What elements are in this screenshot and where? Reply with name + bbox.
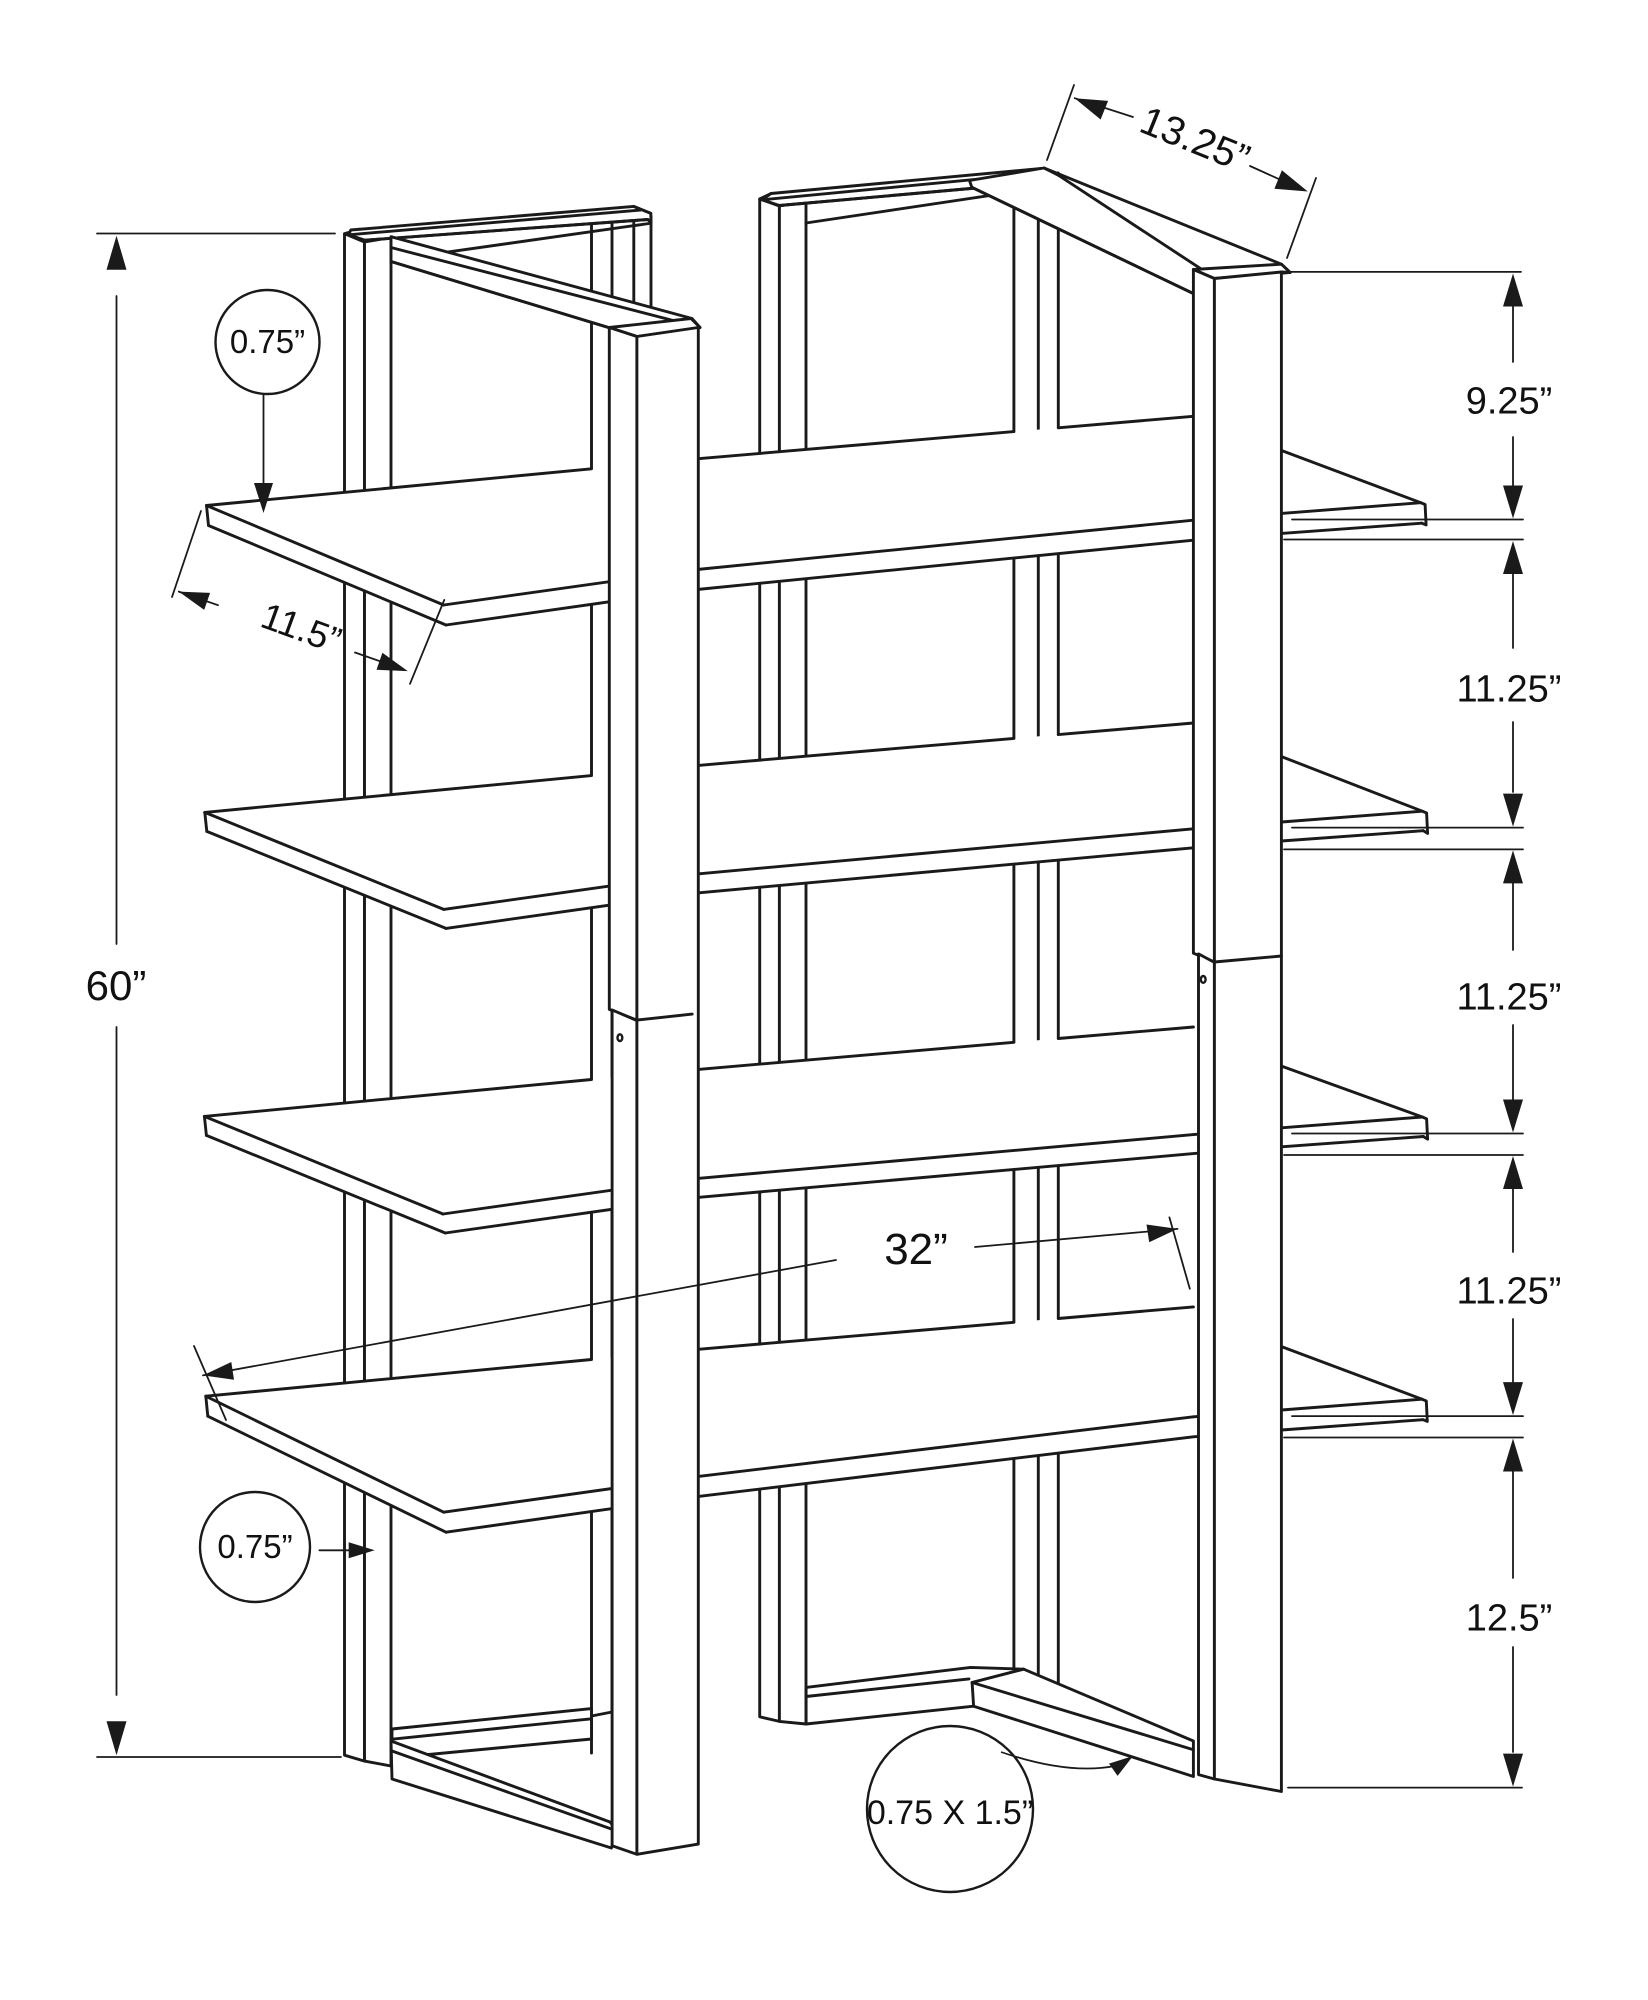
svg-text:0.75 X 1.5”: 0.75 X 1.5” [867, 1794, 1033, 1832]
svg-text:60”: 60” [86, 962, 147, 1009]
svg-text:0.75”: 0.75” [230, 323, 305, 360]
svg-text:11.25”: 11.25” [1457, 977, 1562, 1019]
svg-text:32”: 32” [884, 1225, 948, 1274]
svg-text:9.25”: 9.25” [1466, 381, 1553, 423]
svg-text:11.25”: 11.25” [1457, 1270, 1562, 1312]
svg-text:12.5”: 12.5” [1466, 1598, 1553, 1640]
svg-text:11.25”: 11.25” [1457, 669, 1562, 711]
svg-text:0.75”: 0.75” [217, 1528, 292, 1565]
